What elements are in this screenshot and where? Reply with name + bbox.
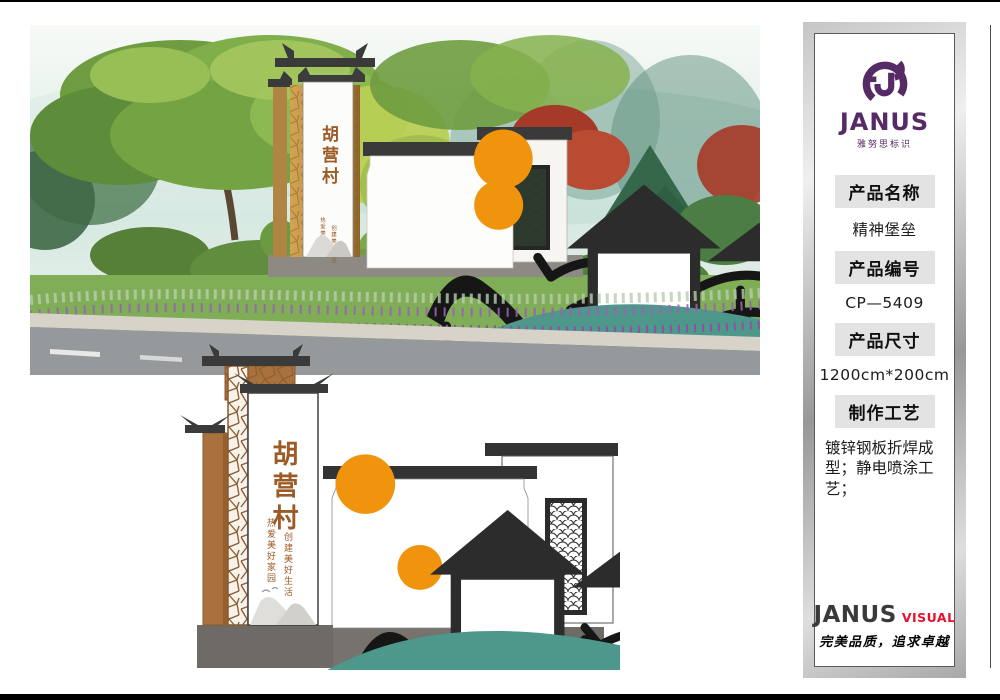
pillar-roof: [202, 344, 310, 366]
footer-slogan: 完美品质，追求卓越: [819, 631, 950, 650]
product-size-value: 1200cm*200cm: [819, 366, 949, 384]
design-sheet: 美丽乡村 胡营村: [0, 0, 1000, 700]
logo-block: JANUS 雅努思标识: [840, 48, 929, 150]
pillar-bracket: [180, 415, 230, 433]
section-label-product-size: 产品尺寸: [835, 323, 935, 356]
product-info-inner: JANUS 雅努思标识 产品名称 精神堡垒 产品编号 CP—5409 产品尺寸 …: [814, 33, 955, 667]
elevation-drawing: 胡营村 热爱美好家园 创建美好生活: [150, 340, 620, 670]
process-value: 镀锌钢板折焊成型；静电喷涂工艺；: [825, 438, 944, 499]
janus-logo-icon: [852, 48, 918, 110]
top-border-strip: [0, 0, 1000, 2]
section-label-product-code: 产品编号: [835, 251, 935, 284]
bottom-border-strip: [0, 694, 1000, 700]
footer-brand: JANUS VISUAL: [813, 604, 955, 627]
product-name-value: 精神堡垒: [852, 218, 916, 240]
brand-subtitle: 雅努思标识: [857, 137, 912, 150]
product-info-panel: JANUS 雅努思标识 产品名称 精神堡垒 产品编号 CP—5409 产品尺寸 …: [803, 22, 966, 678]
photo-render: 胡营村 热爱美好家园 创建美好生活: [30, 25, 760, 375]
panel-footer: JANUS VISUAL 完美品质，追求卓越: [813, 604, 955, 654]
tower-left-post: [273, 87, 287, 257]
footer-brand-name: JANUS: [813, 604, 896, 627]
footer-brand-suffix: VISUAL: [902, 612, 956, 625]
village-name-vertical: 胡营村: [318, 124, 339, 188]
section-label-process: 制作工艺: [835, 395, 935, 428]
page-edge-line: [990, 25, 991, 668]
slogan-left: 热爱美好家园: [265, 517, 276, 584]
brand-name: JANUS: [840, 110, 929, 134]
section-label-product-name: 产品名称: [835, 175, 935, 208]
pillar-base: [197, 625, 333, 668]
product-code-value: CP—5409: [845, 294, 924, 312]
slogan-right: 创建美好生活: [282, 531, 293, 598]
